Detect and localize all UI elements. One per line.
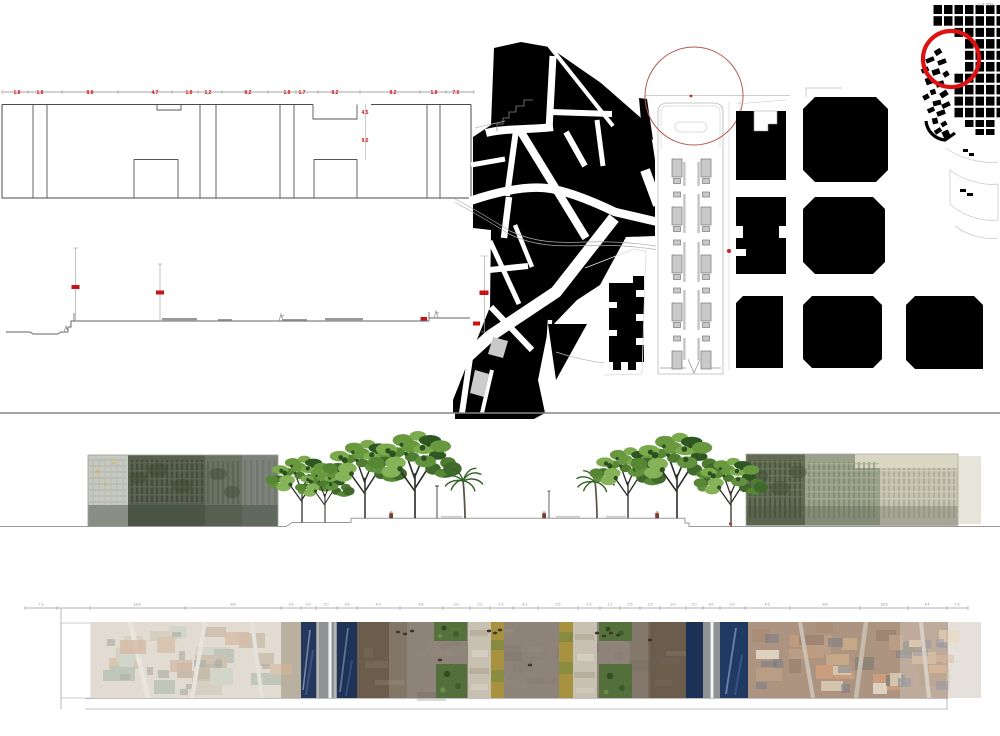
svg-text:3.0: 3.0 bbox=[709, 603, 714, 607]
svg-text:2.0: 2.0 bbox=[692, 603, 697, 607]
svg-text:8.2: 8.2 bbox=[390, 90, 397, 96]
svg-text:2.1: 2.1 bbox=[608, 603, 613, 607]
svg-text:7.0: 7.0 bbox=[453, 90, 460, 96]
svg-text:1.8: 1.8 bbox=[284, 90, 291, 96]
svg-text:3.8: 3.8 bbox=[345, 603, 350, 607]
svg-text:2.3: 2.3 bbox=[648, 603, 653, 607]
svg-text:3.0: 3.0 bbox=[730, 603, 735, 607]
svg-text:2.2: 2.2 bbox=[478, 603, 483, 607]
svg-text:1:5.000: 1:5.000 bbox=[978, 2, 994, 7]
svg-text:3.0: 3.0 bbox=[306, 603, 311, 607]
svg-text:1.8: 1.8 bbox=[431, 90, 438, 96]
svg-text:8.6: 8.6 bbox=[823, 603, 828, 607]
svg-text:8.6: 8.6 bbox=[231, 603, 236, 607]
svg-text:8.6: 8.6 bbox=[419, 603, 424, 607]
svg-text:2.5: 2.5 bbox=[628, 603, 633, 607]
svg-text:3.0: 3.0 bbox=[671, 603, 676, 607]
svg-text:18.6: 18.6 bbox=[134, 603, 141, 607]
svg-text:8.1: 8.1 bbox=[523, 603, 528, 607]
svg-text:4.7: 4.7 bbox=[152, 90, 159, 96]
svg-text:9.0: 9.0 bbox=[362, 138, 369, 144]
svg-text:1.2: 1.2 bbox=[205, 90, 212, 96]
svg-text:18.6: 18.6 bbox=[881, 603, 888, 607]
svg-text:8.2: 8.2 bbox=[245, 90, 252, 96]
svg-text:7.3: 7.3 bbox=[955, 603, 960, 607]
svg-text:7.3: 7.3 bbox=[39, 603, 44, 607]
svg-text:4.5: 4.5 bbox=[362, 110, 369, 116]
svg-text:2.3: 2.3 bbox=[499, 603, 504, 607]
svg-text:1.8: 1.8 bbox=[186, 90, 193, 96]
svg-text:3.0: 3.0 bbox=[454, 603, 459, 607]
svg-text:4.4: 4.4 bbox=[925, 603, 930, 607]
svg-text:4.5: 4.5 bbox=[765, 603, 770, 607]
svg-text:2.3: 2.3 bbox=[587, 603, 592, 607]
svg-text:3.5: 3.5 bbox=[556, 603, 561, 607]
svg-text:2.0: 2.0 bbox=[324, 603, 329, 607]
svg-text:1.8: 1.8 bbox=[14, 90, 21, 96]
svg-text:8.8: 8.8 bbox=[87, 90, 94, 96]
svg-text:1.7: 1.7 bbox=[299, 90, 306, 96]
svg-text:1.8: 1.8 bbox=[37, 90, 44, 96]
svg-text:2.6: 2.6 bbox=[289, 603, 294, 607]
svg-text:4.0: 4.0 bbox=[376, 603, 381, 607]
svg-text:8.2: 8.2 bbox=[332, 90, 339, 96]
